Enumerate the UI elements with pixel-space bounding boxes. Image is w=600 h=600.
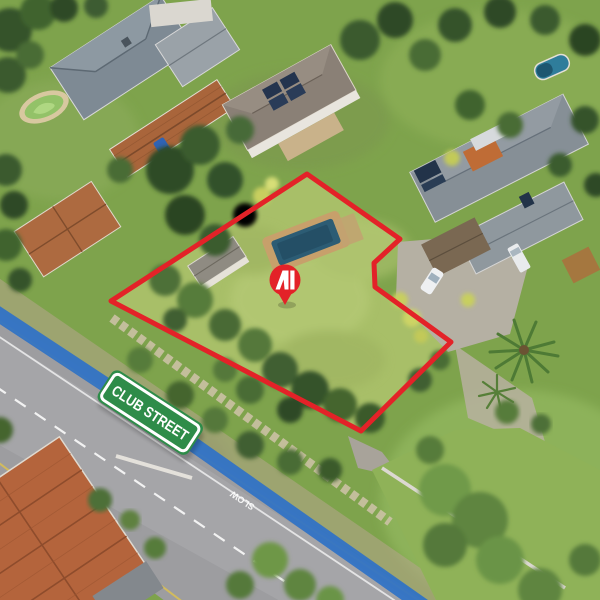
aerial-photo: SLOW [0, 0, 600, 600]
aerial-scene: SLOW [0, 0, 600, 600]
round-bush-2 [531, 414, 551, 434]
round-bush [495, 400, 519, 424]
pin-shadow [278, 302, 296, 309]
